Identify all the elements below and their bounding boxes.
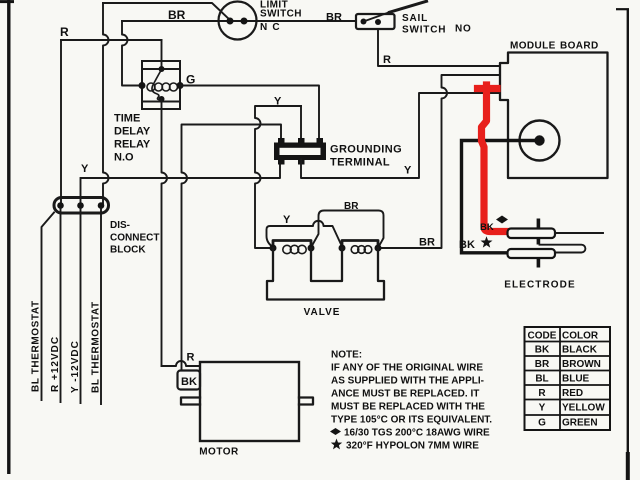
- svg-text:N C: N C: [260, 22, 281, 33]
- svg-text:BR: BR: [326, 12, 342, 24]
- svg-text:BLOCK: BLOCK: [110, 245, 146, 256]
- svg-text:DIS-: DIS-: [110, 220, 130, 231]
- svg-text:BOARD: BOARD: [560, 41, 599, 52]
- svg-text:BL: BL: [535, 374, 548, 385]
- svg-text:BR: BR: [419, 237, 435, 249]
- svg-text:RELAY: RELAY: [114, 139, 151, 151]
- svg-text:COLOR: COLOR: [562, 331, 599, 342]
- svg-text:BK: BK: [181, 376, 197, 388]
- svg-text:16/30 TGS 200°C 18AWG WIRE: 16/30 TGS 200°C 18AWG WIRE: [344, 428, 490, 439]
- svg-text:GREEN: GREEN: [562, 418, 598, 429]
- svg-text:BR: BR: [535, 359, 550, 370]
- svg-text:MOTOR: MOTOR: [199, 447, 239, 458]
- svg-text:DELAY: DELAY: [114, 126, 151, 138]
- svg-text:BK: BK: [459, 239, 475, 251]
- svg-text:RED: RED: [562, 388, 583, 399]
- svg-text:G: G: [538, 418, 546, 429]
- svg-text:R: R: [538, 388, 546, 399]
- svg-text:R +12VDC: R +12VDC: [50, 336, 61, 392]
- svg-text:BLACK: BLACK: [562, 345, 598, 356]
- svg-text:Y: Y: [283, 214, 291, 226]
- svg-text:TIME: TIME: [114, 113, 140, 125]
- svg-text:MODULE: MODULE: [510, 41, 556, 52]
- svg-text:SAIL: SAIL: [402, 13, 428, 24]
- svg-text:YELLOW: YELLOW: [562, 403, 605, 414]
- svg-text:AS SUPPLIED WITH THE APPLI-: AS SUPPLIED WITH THE APPLI-: [331, 376, 484, 387]
- svg-text:BROWN: BROWN: [562, 359, 601, 370]
- svg-text:BR: BR: [344, 201, 359, 212]
- svg-text:VALVE: VALVE: [304, 307, 341, 318]
- svg-text:Y -12VDC: Y -12VDC: [70, 340, 81, 393]
- svg-text:SWITCH: SWITCH: [260, 9, 302, 20]
- svg-text:GROUNDING: GROUNDING: [330, 144, 402, 156]
- svg-text:N.O: N.O: [114, 152, 134, 164]
- svg-text:G: G: [186, 73, 195, 87]
- svg-text:ELECTRODE: ELECTRODE: [504, 280, 576, 291]
- svg-text:CODE: CODE: [528, 331, 557, 342]
- svg-text:BK: BK: [535, 345, 550, 356]
- svg-text:ANCE MUST BE REPLACED. IT: ANCE MUST BE REPLACED. IT: [331, 389, 479, 400]
- svg-text:320°F HYPOLON 7MM WIRE: 320°F HYPOLON 7MM WIRE: [346, 441, 479, 452]
- svg-text:IF ANY OF THE ORIGINAL WIRE: IF ANY OF THE ORIGINAL WIRE: [331, 363, 483, 374]
- svg-text:CONNECT: CONNECT: [110, 233, 159, 244]
- svg-text:NOTE:: NOTE:: [331, 350, 362, 361]
- svg-text:MUST BE REPLACED WITH THE: MUST BE REPLACED WITH THE: [331, 402, 485, 413]
- svg-text:R: R: [187, 352, 195, 364]
- svg-text:BLUE: BLUE: [562, 374, 590, 385]
- svg-text:Y: Y: [81, 163, 89, 175]
- svg-text:R: R: [60, 25, 69, 39]
- svg-text:TERMINAL: TERMINAL: [330, 157, 390, 169]
- svg-text:R: R: [383, 54, 391, 66]
- svg-text:BR: BR: [168, 8, 186, 22]
- svg-text:SWITCH: SWITCH: [402, 25, 446, 36]
- svg-text:NO: NO: [455, 24, 472, 35]
- svg-text:BL THERMOSTAT: BL THERMOSTAT: [91, 301, 102, 393]
- svg-text:Y: Y: [539, 403, 546, 414]
- svg-text:Y: Y: [404, 165, 412, 177]
- svg-text:BK: BK: [480, 222, 494, 233]
- svg-text:BL THERMOSTAT: BL THERMOSTAT: [31, 300, 42, 392]
- svg-text:TYPE 105°C OR ITS EQUIVALENT.: TYPE 105°C OR ITS EQUIVALENT.: [331, 415, 492, 426]
